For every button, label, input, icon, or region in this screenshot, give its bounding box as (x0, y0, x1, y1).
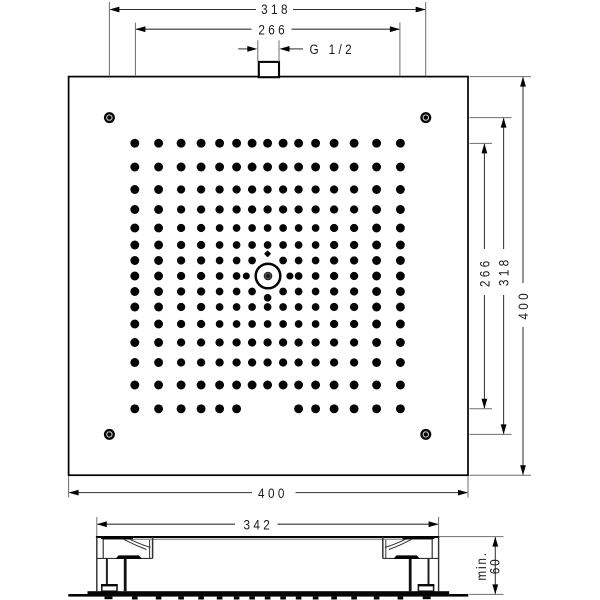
svg-text:318: 318 (496, 256, 512, 286)
svg-text:342: 342 (243, 516, 273, 532)
svg-text:266: 266 (258, 21, 288, 37)
svg-text:G 1/2: G 1/2 (310, 41, 356, 57)
svg-text:400: 400 (515, 290, 531, 320)
svg-text:318: 318 (261, 1, 291, 17)
svg-text:400: 400 (258, 485, 288, 501)
svg-text:266: 266 (476, 257, 492, 287)
